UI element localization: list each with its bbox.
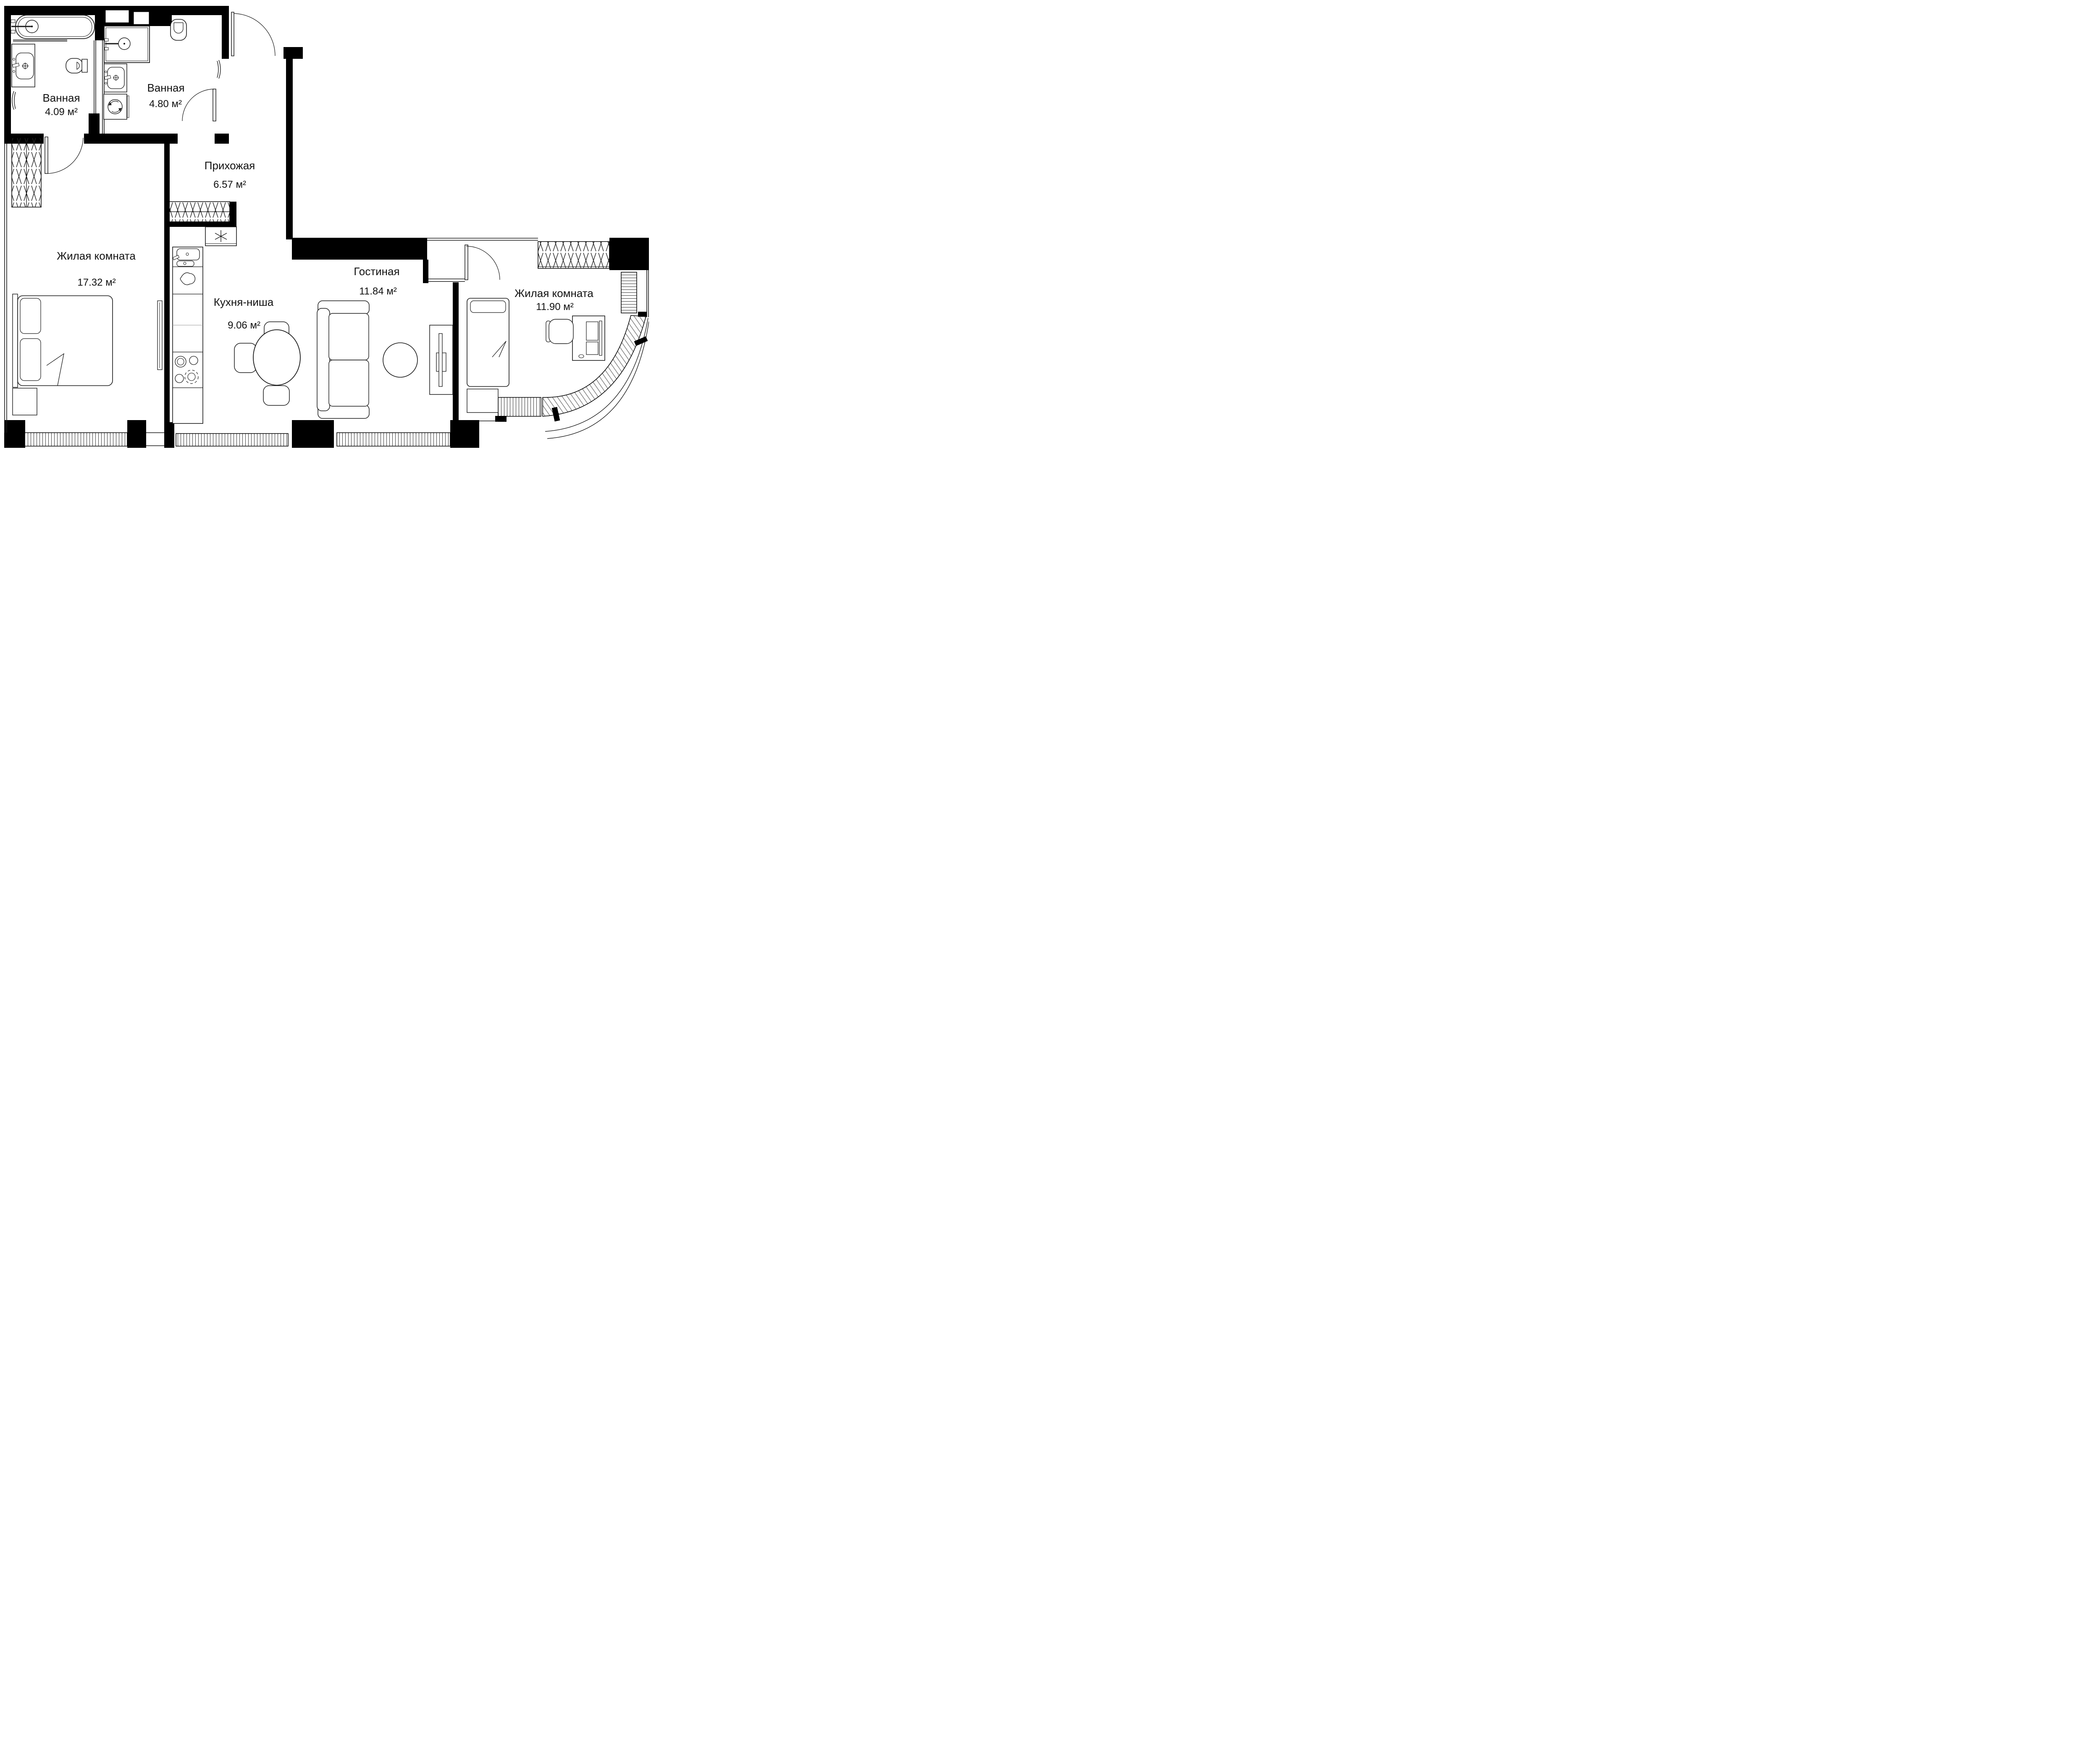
tv-stand-icon [430,325,453,394]
sill-segment [146,433,164,446]
entrance-door-swing-arc [234,13,275,56]
room-name-kitchen-niche: Кухня-ниша [214,296,274,308]
bedroom2-door-leaf [465,245,468,280]
bedside-cabinet-icon [467,389,498,413]
bedroom2-door-swing-arc [466,246,500,280]
room-name-bathroom-2: Ванная [147,81,184,94]
sink-icon [104,64,127,92]
pillow-icon [470,301,506,313]
shower-icon [104,26,150,63]
bedroom1-door-leaf [45,137,48,173]
entrance-door-leaf [231,12,234,56]
curve-mullion-2 [554,407,557,421]
room-kitchen-niche [173,247,300,423]
wardrobe-icon [12,138,41,207]
room-area-bathroom-2: 4.80 м² [149,98,182,110]
wall-kitchen-niche-top [164,222,236,227]
window-bedroom1 [23,433,127,446]
bedroom2-door [465,245,500,280]
dining-table-icon [253,330,300,385]
pier-bottom-3 [292,420,334,448]
wall-kitchen-bedroom [164,144,170,424]
window-bedroom2 [498,397,541,416]
desk-icon [572,316,605,360]
chair-icon [263,386,289,405]
wall-hall-wardrobe-end [230,202,236,222]
wall-entrance-right [283,47,303,59]
coffee-table-icon [383,343,417,377]
window-lounge [337,433,450,446]
washing-machine-icon [104,94,129,119]
towel-rail-icon [217,60,220,79]
wall-bath1-right-thin [94,40,96,113]
room-name-living-room-1: Жилая комната [57,250,136,262]
mouse-icon [579,355,584,358]
bedroom1-door [45,137,83,173]
duct-shaft-2 [134,12,149,24]
room-area-kitchen-niche: 9.06 м² [228,320,260,331]
wardrobe-icon [538,242,609,268]
fridge-icon [205,227,236,246]
wall-left-lower-thin [5,144,7,433]
tv-icon [439,334,442,386]
window-kitchen [176,434,288,446]
wall-lounge-bedroom2 [453,282,459,421]
wall-bedroom2-top-thin [427,238,538,240]
wall-bath-bottom-b [84,134,169,144]
pillow-icon [20,339,41,381]
wall-bath-bottom-d [215,134,229,144]
bath-screen-line [13,40,67,41]
room-area-living-room-1: 17.32 м² [77,277,115,288]
wall-bath2-right [222,15,229,59]
pier-bottom-1 [127,420,146,448]
wall-lounge-top [292,238,427,260]
duct-shaft-1 [105,10,129,23]
room-name-bathroom-1: Ванная [42,92,80,104]
bedroom1-door-swing-arc [48,138,83,173]
pier-bottom-left [4,420,25,448]
hall-wardrobe-icon [169,202,230,222]
room-area-bathroom-1: 4.09 м² [45,106,78,118]
pier-bottom-4 [450,420,479,448]
dining-set [234,322,300,405]
wall-lounge-top-stub [423,260,428,283]
bathroom2-door-swing-arc [182,89,214,121]
sofa-icon [317,301,369,418]
room-name-lounge: Гостиная [354,265,399,278]
ducts [105,10,149,24]
bathtub-icon [11,15,94,39]
window-right-edge [621,272,637,313]
wall-corridor-right [286,59,293,239]
room-area-lounge: 11.84 м² [359,286,396,297]
wall-bath-bottom-c [169,134,178,144]
wall-left-upper [4,6,11,144]
floor-plan: Ванная 4.09 м² Ванная 4.80 м² Прихожая 6… [0,0,649,448]
floor-plan-page: Ванная 4.09 м² Ванная 4.80 м² Прихожая 6… [0,0,649,448]
wall-bath-separator-top [95,15,104,40]
towel-rail-icon [12,91,16,110]
desk-chair-icon [546,319,573,344]
room-area-hallway: 6.57 м² [213,179,246,190]
bedside-cabinet-icon [13,388,37,415]
toilet-icon [66,58,87,73]
bathroom2-door [182,89,216,121]
double-bed-icon [13,294,113,387]
room-name-living-room-2: Жилая комната [514,287,593,300]
single-bed-icon [467,298,509,386]
pier-bottom-2 [164,422,174,448]
bathroom2-door-leaf [213,89,216,121]
room-name-hallway: Прихожая [205,159,255,172]
wall-bedroom2-entry-thin [428,279,465,281]
pillow-icon [20,298,41,334]
wall-corner-top-right [609,238,649,270]
wall-bath-separator-bottom [89,113,100,134]
room-area-living-room-2: 11.90 м² [536,301,573,313]
room-lounge [317,301,453,418]
wall-hung-toilet-icon [171,19,186,40]
monitor-icon [599,321,602,355]
vanity-sink-icon [12,44,35,87]
entrance-door [231,12,275,56]
wall-right-edge-thin [647,270,648,317]
room-living-room-1 [12,138,162,415]
